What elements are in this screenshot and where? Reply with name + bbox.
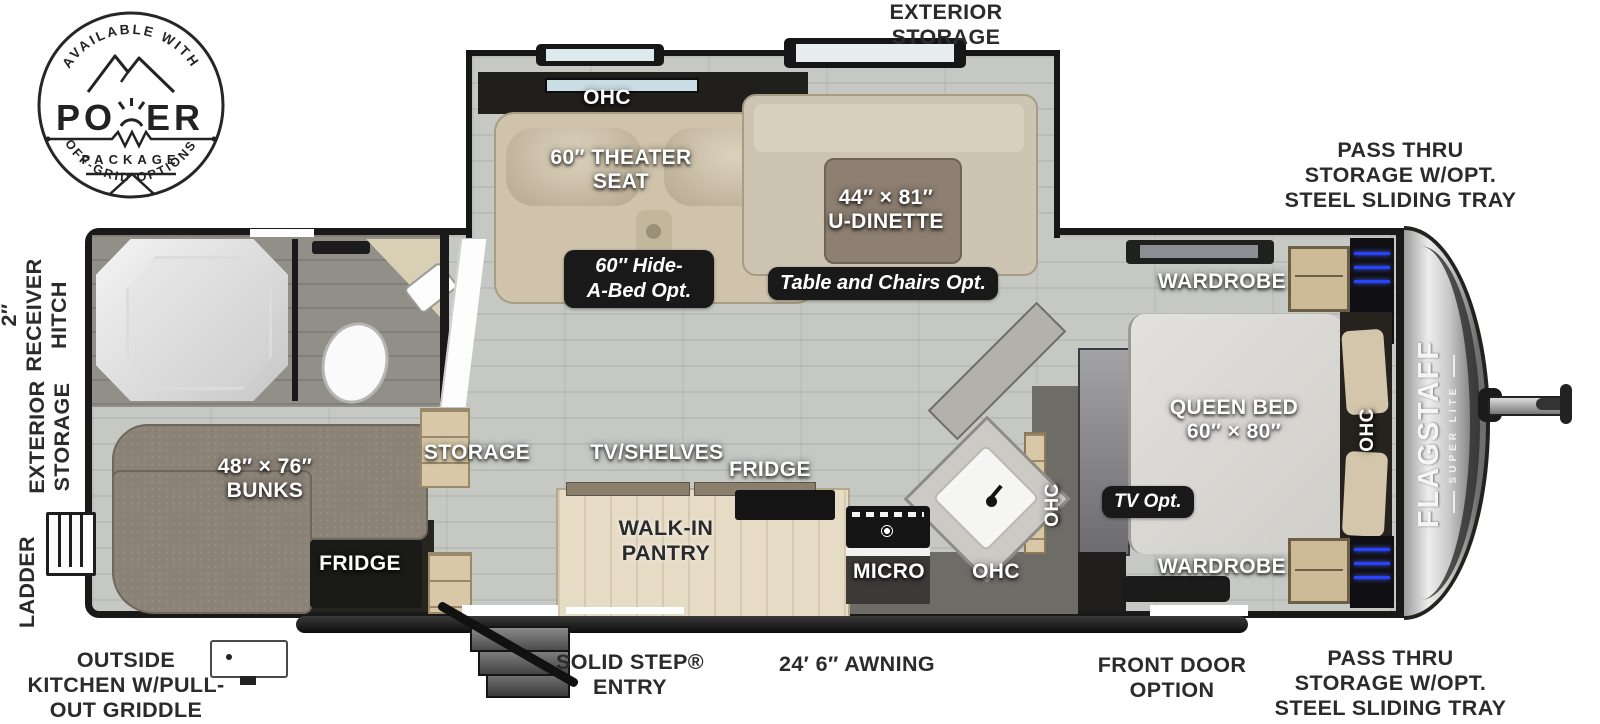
label-pass-thru-top: PASS THRU STORAGE W/OPT. STEEL SLIDING T… bbox=[1228, 138, 1573, 213]
badge-word-left: PO bbox=[56, 97, 116, 138]
label-fridge: FRIDGE bbox=[710, 458, 830, 482]
label-storage: STORAGE bbox=[407, 441, 547, 465]
brand-dash bbox=[1453, 355, 1455, 377]
badge-subtitle: PACKAGE bbox=[81, 152, 180, 167]
label-u-dinette: 44″ × 81″ U-DINETTE bbox=[786, 186, 986, 235]
floorplan: AVAILABLE WITH OFF-GRID OPTIONS PO ER PA… bbox=[0, 0, 1600, 724]
badge-hide-a-bed: 60″ Hide- A-Bed Opt. bbox=[564, 250, 714, 308]
sun-icon bbox=[119, 98, 144, 126]
slide-window bbox=[536, 44, 664, 66]
pantry-door-left bbox=[566, 482, 690, 496]
burner-icon bbox=[880, 524, 894, 538]
bathroom-inner-wall bbox=[292, 239, 298, 401]
hitch-jack-handle bbox=[1560, 384, 1572, 424]
bedroom-divider-base bbox=[1078, 552, 1126, 612]
bedroom-rug bbox=[1122, 576, 1230, 602]
front-door-slot bbox=[1150, 605, 1248, 616]
label-ohc-kitchen: OHC bbox=[936, 560, 1056, 584]
ohc-neon-bottom bbox=[1350, 536, 1394, 608]
mountains-icon-inner bbox=[121, 72, 128, 82]
label-exterior-storage-top: EXTERIOR STORAGE bbox=[812, 0, 1080, 50]
label-wardrobe-bottom: WARDROBE bbox=[1124, 555, 1320, 579]
label-walk-in-pantry: WALK-IN PANTRY bbox=[566, 516, 766, 566]
label-ohc-bed: OHC bbox=[1357, 400, 1379, 460]
label-ladder: LADDER bbox=[15, 522, 39, 642]
stove-handle bbox=[846, 548, 930, 556]
label-exterior-storage-left: EXTERIOR STORAGE bbox=[25, 362, 77, 512]
label-bunks: 48″ × 76″ BUNKS bbox=[165, 455, 365, 504]
stove bbox=[846, 506, 930, 548]
bedroom-divider-mirror bbox=[1078, 348, 1130, 556]
bedroom-skylight bbox=[1126, 240, 1274, 264]
window-slot bbox=[250, 229, 314, 237]
mountains-icon bbox=[88, 56, 174, 92]
label-slide-ohc: OHC bbox=[547, 86, 667, 110]
label-ohc-kitchen-side: OHC bbox=[1042, 475, 1064, 535]
awning-bar bbox=[296, 616, 1248, 633]
brand-sub-text: SUPER LITE bbox=[1448, 385, 1459, 484]
window-slot bbox=[566, 607, 684, 614]
label-micro: MICRO bbox=[829, 560, 949, 584]
entry-door-slot bbox=[462, 605, 558, 616]
label-solid-step-entry: SOLID STEP® ENTRY bbox=[540, 650, 720, 700]
label-theater-seat: 60″ THEATER SEAT bbox=[521, 146, 721, 195]
label-wardrobe-top: WARDROBE bbox=[1124, 270, 1320, 294]
brand-subtitle: SUPER LITE bbox=[1448, 309, 1459, 559]
label-pass-thru-bottom: PASS THRU STORAGE W/OPT. STEEL SLIDING T… bbox=[1218, 646, 1563, 721]
brand-name: FLAGSTAFF bbox=[1413, 309, 1446, 559]
stove-grate bbox=[852, 512, 924, 517]
label-queen-bed: QUEEN BED 60″ × 80″ bbox=[1128, 396, 1340, 445]
skylight-glass bbox=[1140, 245, 1258, 258]
ladder-icon bbox=[46, 512, 96, 576]
shower-pan bbox=[126, 256, 272, 390]
label-outside-kitchen: OUTSIDE KITCHEN W/PULL- OUT GRIDDLE bbox=[6, 648, 246, 723]
toilet-tank bbox=[312, 241, 370, 254]
brand-mark: FLAGSTAFF SUPER LITE bbox=[1413, 309, 1457, 559]
label-bunk-fridge: FRIDGE bbox=[298, 552, 422, 576]
badge-tv-opt: TV Opt. bbox=[1102, 486, 1194, 518]
pillow bbox=[1342, 451, 1388, 537]
power-package-badge: AVAILABLE WITH OFF-GRID OPTIONS PO ER PA… bbox=[28, 6, 233, 206]
badge-table-chairs: Table and Chairs Opt. bbox=[768, 267, 998, 300]
label-awning: 24′ 6″ AWNING bbox=[737, 652, 977, 677]
badge-word-right: ER bbox=[146, 97, 204, 138]
brand-dash bbox=[1453, 491, 1455, 513]
